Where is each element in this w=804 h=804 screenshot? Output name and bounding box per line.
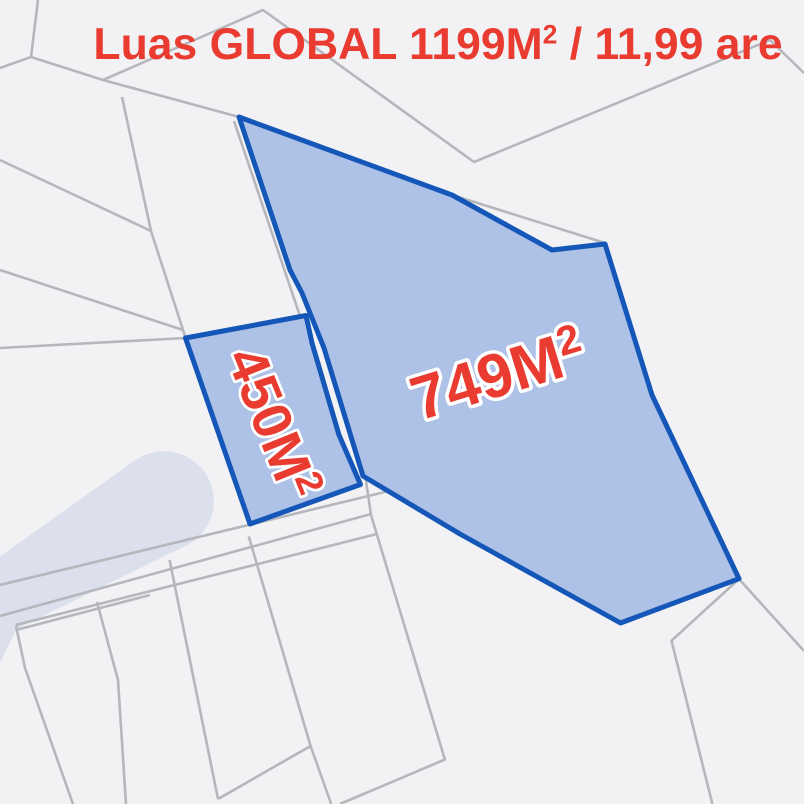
svg-text:Luas GLOBAL 1199M2 / 11,99 are: Luas GLOBAL 1199M2 / 11,99 are (93, 20, 782, 70)
